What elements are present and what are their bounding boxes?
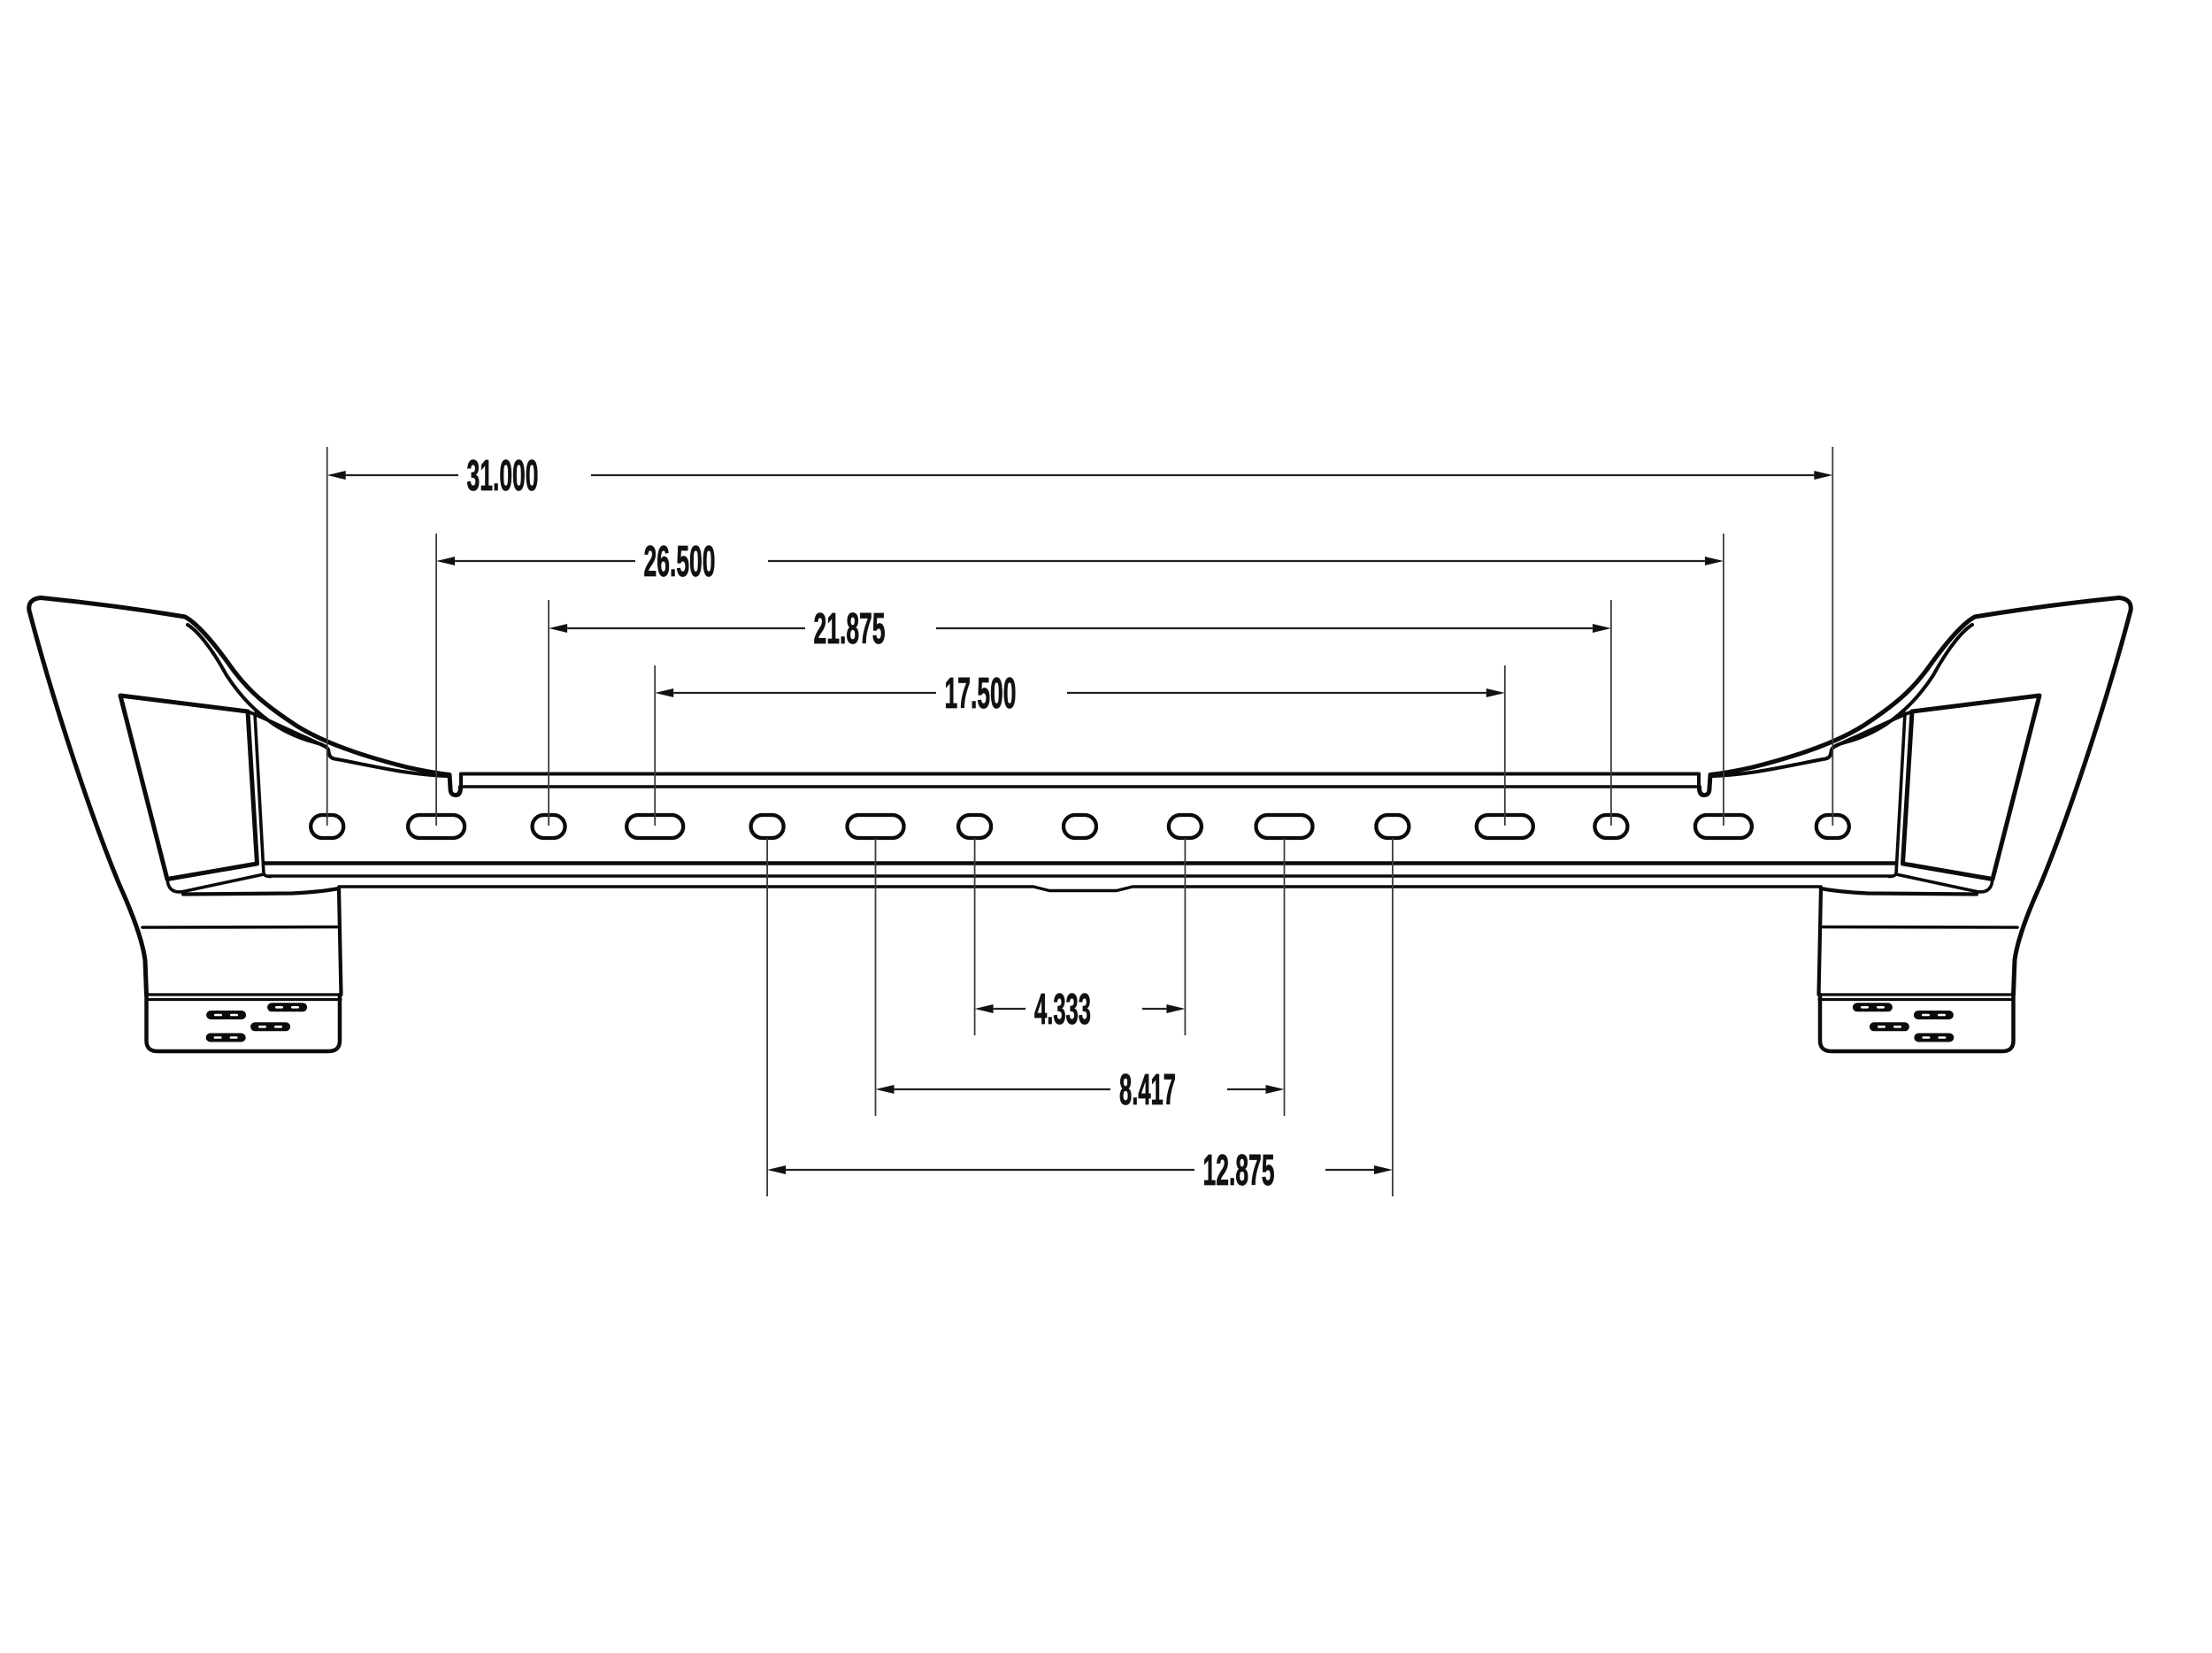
svg-text:21.875: 21.875 [814,605,886,653]
svg-text:12.875: 12.875 [1203,1147,1275,1195]
svg-text:17.500: 17.500 [945,670,1017,718]
svg-text:4.333: 4.333 [1034,986,1091,1034]
svg-text:8.417: 8.417 [1119,1066,1176,1114]
svg-text:26.500: 26.500 [644,538,716,586]
svg-text:31.000: 31.000 [467,452,539,500]
